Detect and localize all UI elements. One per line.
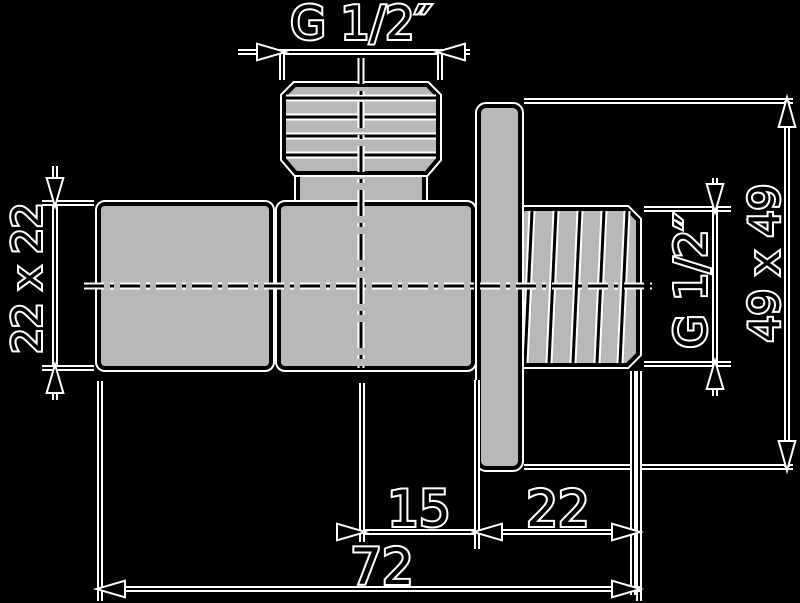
label-outlet-thread: G 1/2″: [666, 213, 717, 348]
label-dim-15: 15: [387, 480, 451, 538]
technical-drawing: G 1/2″G 1/2″ 22 x 2222 x 22 G 1/2″G 1/2″…: [0, 0, 800, 603]
label-plate-section: 49 x 49: [740, 184, 789, 342]
label-top-thread: G 1/2″: [290, 0, 431, 50]
label-dim-22: 22: [526, 480, 590, 538]
label-dim-72: 72: [350, 538, 414, 596]
label-handle-section: 22 x 22: [5, 203, 51, 354]
